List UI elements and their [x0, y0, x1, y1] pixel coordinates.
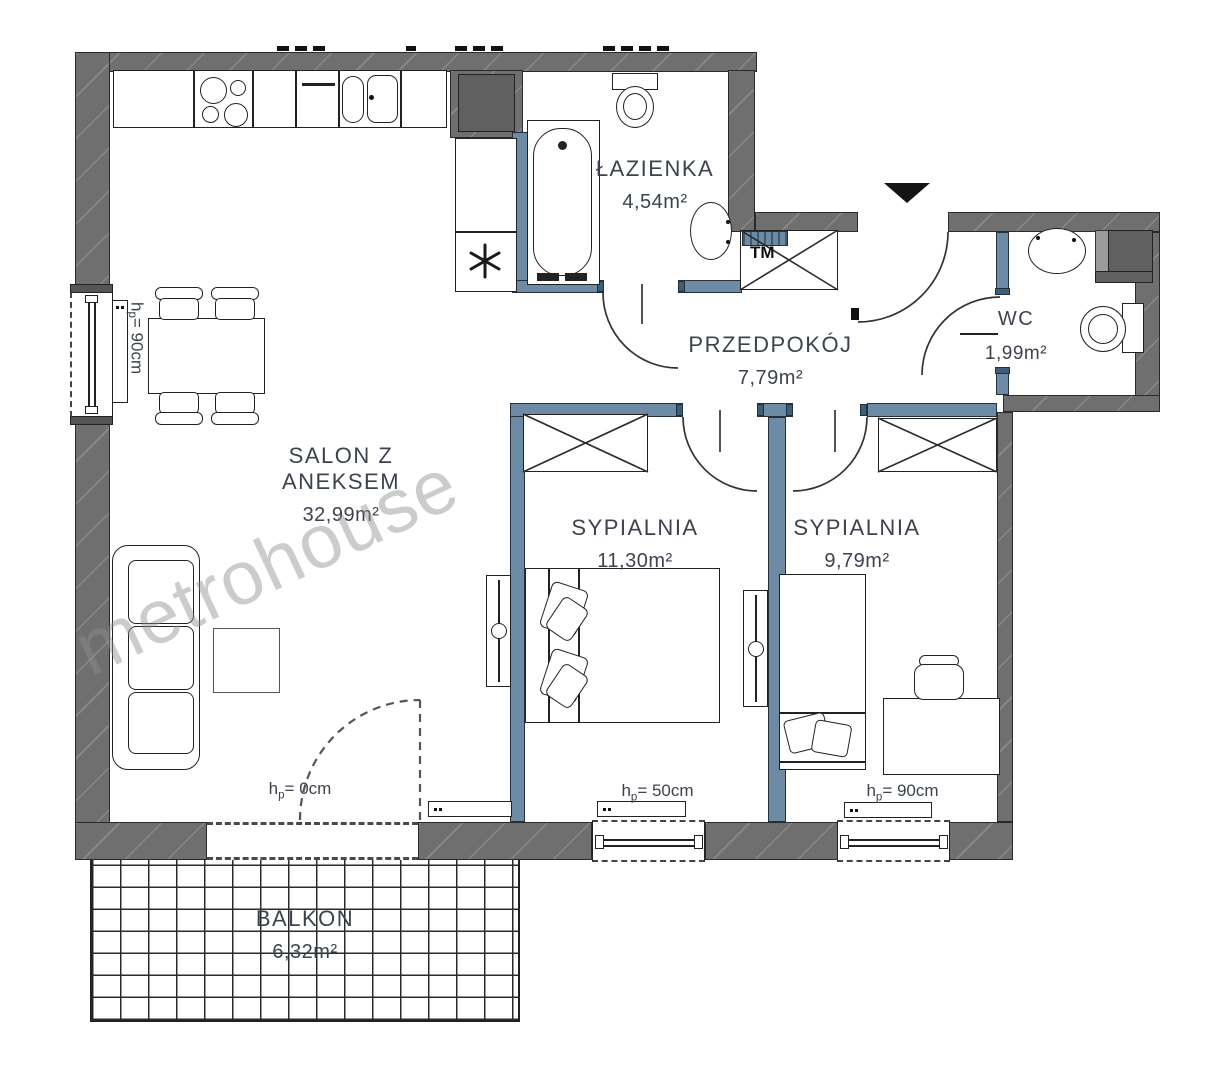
pwall-wc-left-upper	[996, 232, 1009, 295]
window-frame-end	[595, 835, 604, 849]
sill-dot	[121, 306, 124, 309]
toilet-bowl-inner	[623, 93, 647, 120]
wall-bottom-mid1	[418, 822, 592, 860]
hob-burner	[200, 77, 227, 104]
counter-divider	[400, 71, 402, 127]
dim-tick	[657, 46, 669, 51]
room-area: 1,99m²	[966, 343, 1066, 365]
window-glass-line	[88, 301, 90, 407]
room-name: WC	[966, 308, 1066, 331]
room-label-wc: WC 1,99m²	[966, 308, 1066, 365]
sill-balcony-door	[428, 801, 512, 817]
room-area: 32,99m²	[241, 504, 441, 527]
room-name: PRZEDPOKÓJ	[668, 332, 873, 358]
sill-dot	[855, 809, 858, 812]
dim-text: h	[269, 779, 278, 798]
dim-tick	[621, 46, 633, 51]
floor-plan: ŁAZIENKA 4,54m² PRZEDPOKÓJ 7,79m² WC 1,9…	[0, 0, 1226, 1080]
chair-seat	[159, 298, 199, 320]
dim-window-bedroom2: hp= 90cm	[845, 781, 960, 803]
chair-seat	[215, 298, 255, 320]
room-area: 11,30m²	[535, 550, 735, 573]
basin-tap	[1036, 236, 1040, 240]
bathtub-step	[537, 273, 559, 281]
sink-basin-left	[342, 76, 364, 123]
basin-tap	[1072, 238, 1076, 242]
room-name: SALON Z ANEKSEM	[241, 443, 441, 495]
radiator-valve	[748, 641, 764, 657]
chair-back	[211, 412, 259, 425]
radiator-valve	[491, 623, 507, 639]
sill-dot	[608, 808, 611, 811]
bathtub-step	[565, 273, 587, 281]
basin-tap	[726, 240, 730, 244]
sink-tap	[369, 95, 374, 100]
kitchen-tall-cabinet	[455, 138, 517, 232]
chair-back	[155, 412, 203, 425]
wall-bottom-mid2	[705, 822, 838, 860]
wall-top	[75, 52, 757, 72]
dim-text: = 90cm	[882, 781, 938, 800]
chair-seat	[159, 392, 199, 414]
dim-text: h	[621, 781, 630, 800]
room-area: 9,79m²	[757, 550, 957, 573]
room-name: BALKON	[205, 906, 405, 932]
window-glass-line	[94, 301, 96, 407]
dim-window-living: hp= 90cm	[126, 302, 146, 417]
door-jamb-cap	[678, 281, 685, 292]
wc-shaft-step	[1095, 271, 1153, 283]
coffee-table	[213, 628, 280, 693]
window-glass-line	[601, 839, 698, 841]
sill-dot	[603, 808, 606, 811]
balcony-door-arc	[300, 700, 420, 820]
room-label-bedroom1: SYPIALNIA 11,30m²	[535, 515, 735, 573]
desk-chair-seat	[914, 664, 964, 700]
fridge-freezer	[455, 232, 517, 292]
window-frame-end	[939, 835, 948, 849]
door-arc-bedroom1	[683, 417, 757, 491]
window-living	[70, 292, 113, 417]
door-jamb-cap	[786, 404, 793, 416]
wall-left-lower	[75, 417, 110, 860]
dim-text: = 0cm	[285, 779, 332, 798]
sofa-cushion	[128, 692, 194, 754]
sofa-cushion	[128, 560, 194, 624]
dim-window-bedroom1: hp= 50cm	[600, 781, 715, 803]
door-jamb-cap	[995, 367, 1010, 374]
wardrobe-bedroom2	[878, 418, 997, 472]
counter-divider	[338, 71, 340, 127]
dim-tick	[295, 46, 307, 51]
room-label-balcony: BALKON 6,32m²	[205, 906, 405, 964]
bed-foot-line	[780, 761, 865, 763]
sill-bedroom2	[844, 802, 932, 818]
wc-label-line	[960, 333, 998, 335]
sofa-cushion	[128, 626, 194, 690]
room-name: ŁAZIENKA	[555, 156, 755, 182]
counter-divider	[193, 71, 195, 127]
sill-dot	[116, 306, 119, 309]
dim-tick	[473, 46, 485, 51]
tm-unit-label: TM	[750, 243, 775, 263]
hob-burner	[224, 103, 248, 127]
dim-tick	[406, 46, 416, 51]
sill-dot	[850, 809, 853, 812]
door-jamb-cap	[676, 404, 683, 416]
dining-table	[148, 318, 265, 394]
room-name: SYPIALNIA	[535, 515, 735, 541]
pwall-bedrooms-top-c	[867, 403, 997, 417]
dim-text: h	[866, 781, 875, 800]
room-area: 4,54m²	[555, 191, 755, 214]
dim-text: = 90cm	[127, 318, 146, 374]
wall-wc-bottom	[1003, 395, 1160, 412]
dim-tick	[277, 46, 289, 51]
room-name: SYPIALNIA	[757, 515, 957, 541]
entrance-arrow-icon	[884, 183, 930, 203]
dim-tick	[491, 46, 503, 51]
door-jamb-cap	[860, 404, 867, 416]
window-bedroom1	[592, 820, 705, 862]
door-jamb-cap	[995, 288, 1010, 295]
dim-tick	[313, 46, 325, 51]
dim-tick	[455, 46, 467, 51]
window-glass-line	[846, 839, 943, 841]
wall-entry-left	[755, 212, 858, 232]
door-arc-bathroom	[603, 293, 678, 368]
hob-burner	[202, 106, 219, 123]
pillow	[810, 719, 852, 758]
counter-divider	[295, 71, 297, 127]
door-jamb-cap	[757, 404, 764, 416]
room-label-bedroom2: SYPIALNIA 9,79m²	[757, 515, 957, 573]
room-label-bathroom: ŁAZIENKA 4,54m²	[555, 156, 755, 214]
counter-divider	[252, 71, 254, 127]
dim-text: = 50cm	[637, 781, 693, 800]
window-frame-end	[85, 295, 98, 303]
balcony-door-zone	[207, 822, 418, 860]
dim-tick	[639, 46, 651, 51]
wardrobe-bedroom1	[523, 414, 648, 472]
window-frame-end	[85, 406, 98, 414]
dim-balcony-door: hp= 0cm	[240, 779, 360, 801]
washbasin-wc	[1028, 228, 1086, 274]
window-glass-line	[601, 845, 698, 847]
bathtub-tap	[558, 141, 567, 150]
room-label-hallway: PRZEDPOKÓJ 7,79m²	[668, 332, 873, 390]
dim-tick	[603, 46, 615, 51]
hob-burner	[230, 80, 246, 96]
window-frame-end	[840, 835, 849, 849]
window-frame-end	[694, 835, 703, 849]
basin-tap	[726, 220, 730, 224]
wall-bottom-right	[948, 822, 1013, 860]
kitchen-column-core	[458, 74, 515, 132]
sill-dot	[439, 808, 442, 811]
room-label-living: SALON Z ANEKSEM 32,99m²	[241, 443, 441, 527]
sill-dot	[434, 808, 437, 811]
wall-left-upper	[75, 52, 110, 292]
radiator-living	[486, 575, 511, 687]
pwall-bathroom-bottom-right	[678, 280, 742, 293]
room-area: 7,79m²	[668, 367, 873, 390]
chair-seat	[215, 392, 255, 414]
door-arc-entrance	[858, 232, 948, 322]
sill-bedroom1	[597, 801, 686, 817]
door-stop	[851, 308, 859, 320]
toilet-bowl-wc-inner	[1088, 314, 1118, 344]
wall-bottom-left	[75, 822, 207, 860]
room-area: 6,32m²	[205, 941, 405, 964]
window-glass-line	[846, 845, 943, 847]
window-bedroom2	[837, 820, 950, 862]
radiator-bedroom1	[743, 590, 768, 707]
door-arc-bedroom2	[793, 417, 867, 491]
desk	[883, 698, 1000, 775]
dishwasher-line	[302, 83, 335, 86]
